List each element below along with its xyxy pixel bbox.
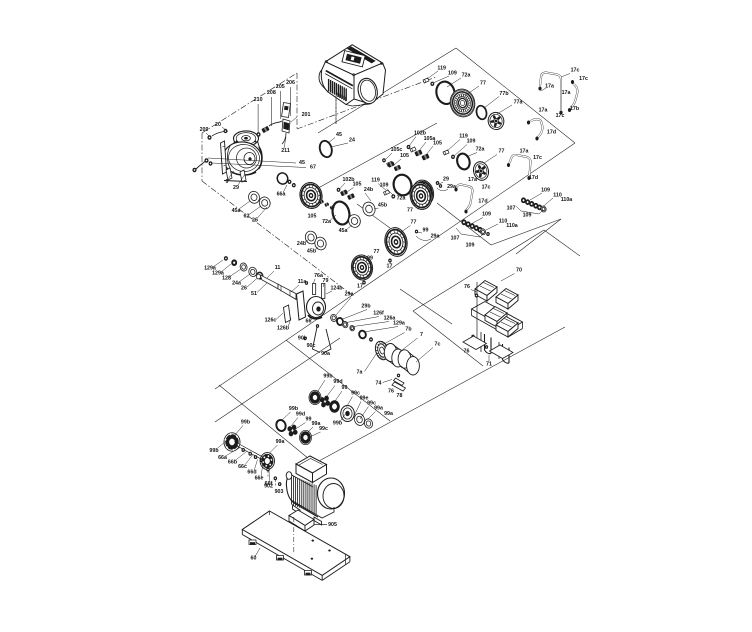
svg-text:110a: 110a bbox=[561, 197, 573, 203]
svg-text:90b: 90b bbox=[298, 336, 308, 342]
svg-text:99a: 99a bbox=[384, 411, 393, 417]
svg-text:76: 76 bbox=[464, 349, 470, 355]
svg-text:51: 51 bbox=[251, 291, 257, 297]
svg-text:66: 66 bbox=[306, 319, 312, 325]
svg-text:29: 29 bbox=[233, 185, 239, 191]
svg-text:17: 17 bbox=[357, 284, 363, 290]
svg-text:76: 76 bbox=[464, 284, 470, 290]
svg-text:24: 24 bbox=[349, 138, 355, 144]
svg-text:66c: 66c bbox=[238, 464, 247, 470]
svg-text:77: 77 bbox=[407, 208, 413, 214]
svg-text:79: 79 bbox=[323, 278, 329, 284]
svg-text:99b: 99b bbox=[333, 421, 343, 427]
svg-text:17a: 17a bbox=[545, 84, 554, 90]
svg-text:201: 201 bbox=[302, 112, 311, 118]
svg-text:208: 208 bbox=[267, 90, 276, 96]
svg-text:17a: 17a bbox=[520, 149, 529, 155]
svg-text:26: 26 bbox=[241, 286, 247, 292]
svg-text:99a: 99a bbox=[276, 439, 285, 445]
svg-text:109: 109 bbox=[466, 243, 475, 249]
svg-text:17c: 17c bbox=[482, 185, 491, 191]
svg-text:7b: 7b bbox=[405, 327, 412, 333]
svg-text:66a: 66a bbox=[277, 192, 286, 198]
svg-text:77: 77 bbox=[374, 249, 380, 255]
svg-text:105: 105 bbox=[400, 153, 409, 159]
svg-text:99b: 99b bbox=[241, 420, 251, 426]
svg-text:109: 109 bbox=[380, 183, 389, 189]
svg-text:109: 109 bbox=[541, 188, 550, 194]
svg-text:72a: 72a bbox=[397, 196, 406, 202]
svg-text:905: 905 bbox=[328, 522, 337, 528]
svg-text:77: 77 bbox=[411, 220, 417, 226]
svg-text:77: 77 bbox=[480, 81, 486, 87]
svg-text:126f: 126f bbox=[373, 311, 384, 317]
svg-text:126b: 126b bbox=[277, 326, 290, 332]
svg-text:72a: 72a bbox=[462, 73, 471, 79]
svg-text:119: 119 bbox=[437, 66, 446, 72]
svg-text:17d: 17d bbox=[547, 130, 556, 136]
svg-text:210: 210 bbox=[254, 97, 263, 103]
svg-text:66b: 66b bbox=[228, 460, 238, 466]
svg-text:17a: 17a bbox=[539, 108, 548, 114]
svg-text:17a: 17a bbox=[468, 177, 477, 183]
svg-text:119: 119 bbox=[371, 178, 380, 184]
svg-text:66e: 66e bbox=[255, 476, 264, 482]
svg-text:20: 20 bbox=[215, 122, 221, 128]
svg-text:77: 77 bbox=[499, 149, 505, 155]
svg-text:17c: 17c bbox=[579, 76, 588, 82]
svg-text:45b: 45b bbox=[378, 203, 388, 209]
svg-text:99: 99 bbox=[423, 228, 429, 234]
svg-text:78: 78 bbox=[397, 393, 403, 399]
svg-text:45: 45 bbox=[299, 160, 305, 166]
svg-text:902: 902 bbox=[264, 484, 273, 490]
svg-text:67: 67 bbox=[310, 165, 316, 171]
svg-text:45: 45 bbox=[336, 132, 342, 138]
svg-text:45a: 45a bbox=[339, 228, 348, 234]
svg-text:24b: 24b bbox=[297, 241, 307, 247]
svg-text:29a: 29a bbox=[431, 234, 440, 240]
svg-text:90c: 90c bbox=[307, 343, 316, 349]
svg-text:71: 71 bbox=[486, 362, 492, 368]
svg-text:109: 109 bbox=[467, 139, 476, 145]
svg-text:24b: 24b bbox=[364, 187, 374, 193]
svg-text:76: 76 bbox=[388, 389, 394, 395]
svg-text:29: 29 bbox=[443, 177, 449, 183]
svg-text:17c: 17c bbox=[533, 155, 542, 161]
svg-text:99: 99 bbox=[367, 256, 373, 262]
svg-text:105: 105 bbox=[433, 141, 442, 147]
svg-text:17c: 17c bbox=[571, 68, 580, 74]
svg-text:17d: 17d bbox=[529, 175, 538, 181]
svg-text:99b: 99b bbox=[323, 374, 333, 380]
svg-text:99a: 99a bbox=[374, 406, 383, 412]
svg-text:72a: 72a bbox=[322, 219, 331, 225]
svg-text:903: 903 bbox=[275, 489, 284, 495]
svg-text:17a: 17a bbox=[562, 90, 571, 96]
svg-text:17d: 17d bbox=[478, 199, 487, 205]
svg-text:99c: 99c bbox=[319, 426, 328, 432]
svg-text:126c: 126c bbox=[265, 318, 277, 324]
svg-text:109: 109 bbox=[448, 71, 457, 77]
svg-text:17: 17 bbox=[387, 264, 393, 270]
svg-text:29a: 29a bbox=[345, 292, 354, 298]
svg-text:9: 9 bbox=[226, 179, 229, 185]
svg-text:109: 109 bbox=[482, 212, 491, 218]
svg-text:105: 105 bbox=[308, 214, 317, 220]
svg-text:107: 107 bbox=[451, 236, 460, 242]
svg-text:60: 60 bbox=[251, 556, 257, 562]
svg-text:77a: 77a bbox=[514, 100, 523, 106]
svg-text:110a: 110a bbox=[506, 223, 518, 229]
svg-text:29b: 29b bbox=[361, 304, 371, 310]
svg-text:7: 7 bbox=[420, 332, 423, 338]
svg-text:205: 205 bbox=[276, 84, 285, 90]
svg-text:77b: 77b bbox=[499, 91, 509, 97]
svg-text:107: 107 bbox=[507, 206, 516, 212]
svg-text:99d: 99d bbox=[296, 412, 305, 418]
svg-text:11: 11 bbox=[275, 265, 281, 271]
svg-text:70: 70 bbox=[516, 268, 522, 274]
svg-text:72a: 72a bbox=[476, 147, 485, 153]
svg-text:7a: 7a bbox=[357, 370, 363, 376]
svg-text:124b: 124b bbox=[330, 286, 343, 292]
svg-text:109: 109 bbox=[523, 213, 532, 219]
svg-text:206: 206 bbox=[286, 80, 295, 86]
svg-text:211: 211 bbox=[281, 148, 290, 154]
svg-text:90a: 90a bbox=[321, 351, 330, 357]
svg-text:105: 105 bbox=[353, 182, 362, 188]
svg-text:129a: 129a bbox=[393, 321, 405, 327]
svg-text:99: 99 bbox=[342, 385, 348, 391]
svg-text:62: 62 bbox=[244, 214, 250, 220]
svg-text:99b: 99b bbox=[209, 448, 219, 454]
svg-text:7c: 7c bbox=[435, 342, 441, 348]
svg-text:74: 74 bbox=[376, 381, 382, 387]
svg-text:17c: 17c bbox=[556, 113, 565, 119]
svg-text:209: 209 bbox=[200, 127, 209, 133]
svg-text:17b: 17b bbox=[570, 106, 580, 112]
